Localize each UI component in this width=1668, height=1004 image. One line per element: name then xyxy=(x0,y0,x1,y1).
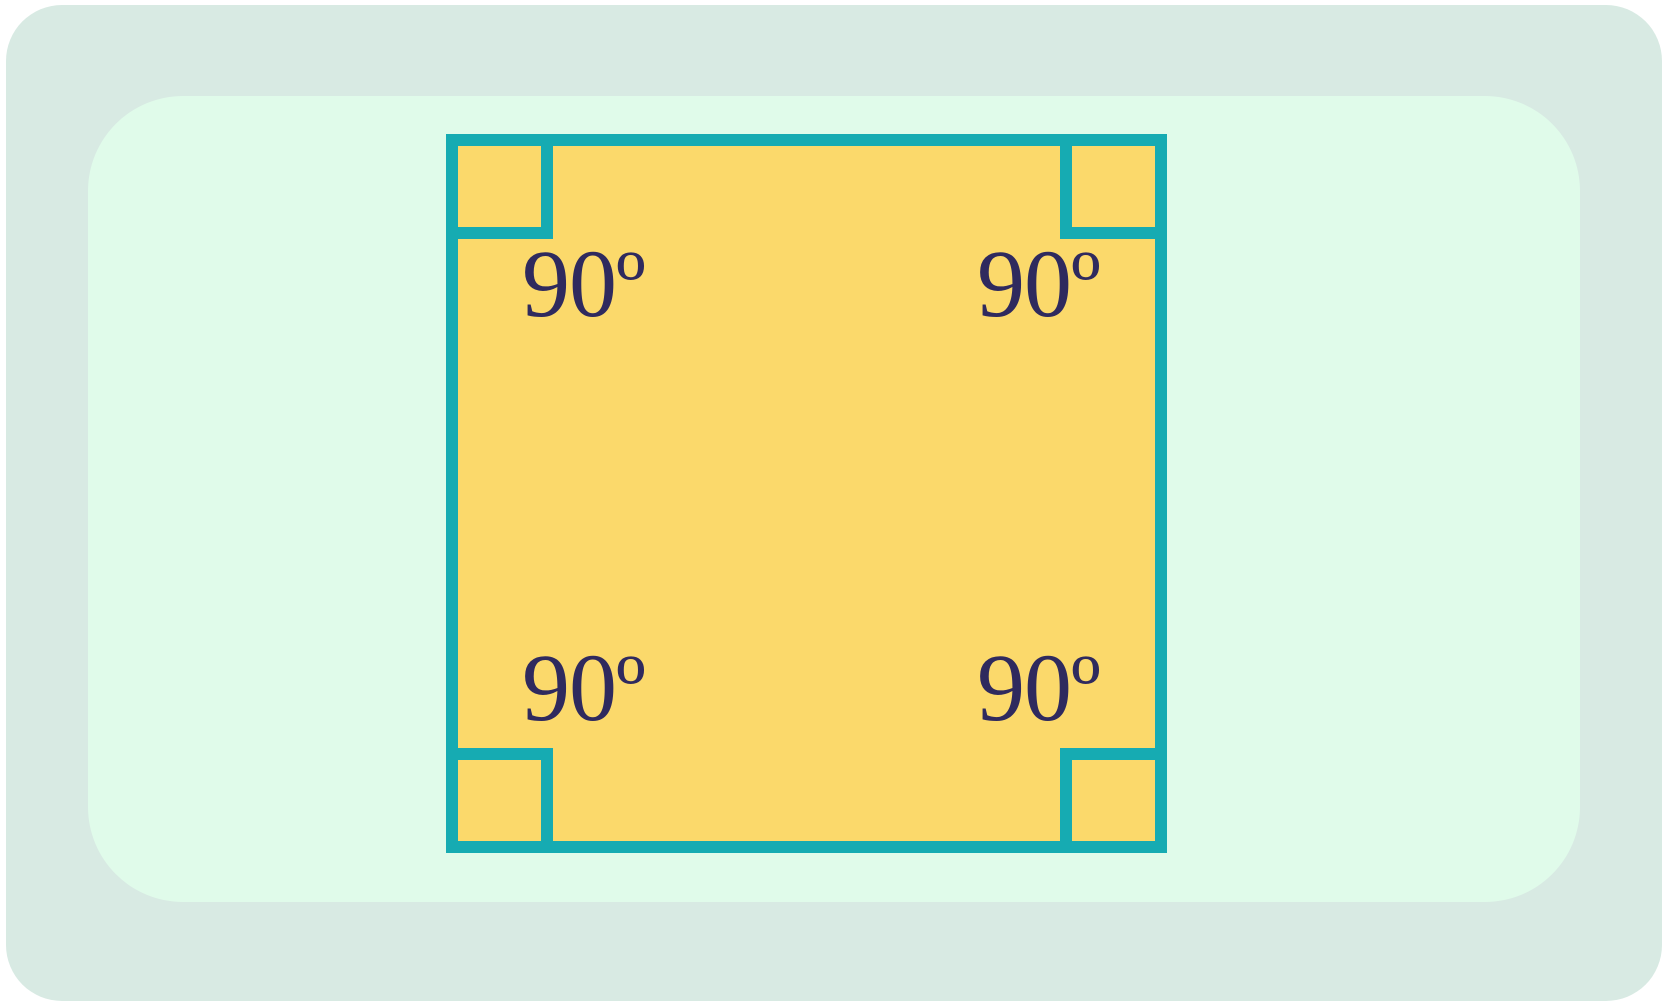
right-angle-marker-top-left xyxy=(458,146,553,239)
angle-label-top-right: 90º xyxy=(977,236,1100,332)
page-background: 90º 90º 90º 90º xyxy=(0,0,1668,1004)
right-angle-marker-bottom-left xyxy=(458,748,553,841)
angle-label-top-left: 90º xyxy=(522,236,645,332)
right-angle-marker-bottom-right xyxy=(1060,748,1155,841)
angle-label-bottom-left: 90º xyxy=(522,640,645,736)
right-angle-marker-top-right xyxy=(1060,146,1155,239)
square-shape: 90º 90º 90º 90º xyxy=(446,134,1167,853)
angle-label-bottom-right: 90º xyxy=(977,640,1100,736)
